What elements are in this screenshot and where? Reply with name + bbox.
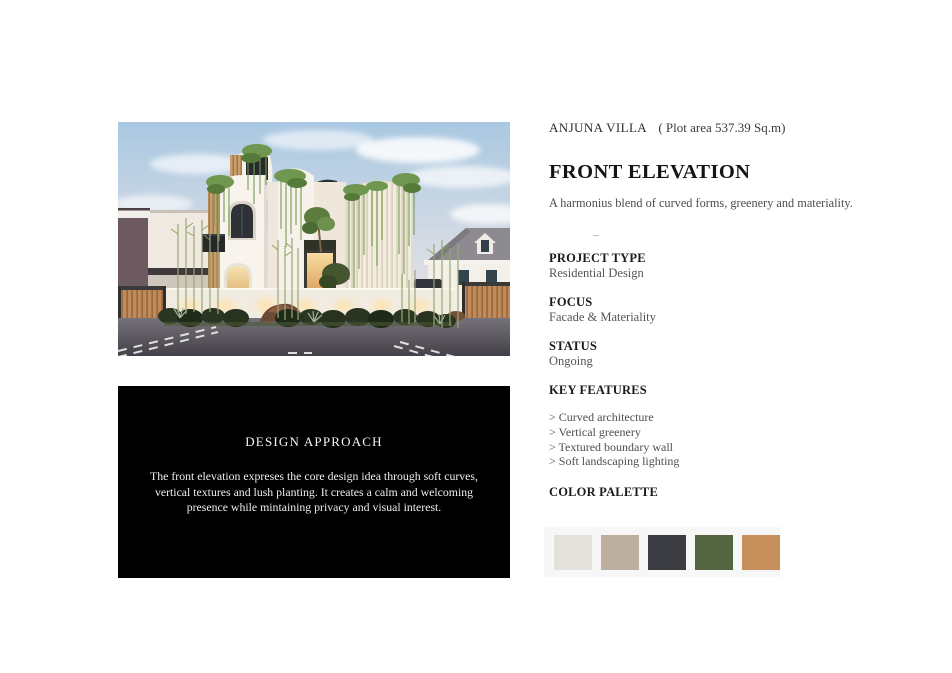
design-approach-body: The front elevation expreses the core de… (118, 469, 510, 516)
detail-label: FOCUS (549, 295, 879, 309)
palette-swatch-charcoal (648, 535, 686, 570)
design-approach-line: The front elevation expreses the core de… (118, 469, 510, 485)
detail-label: PROJECT TYPE (549, 251, 879, 265)
design-approach-line: presence while mintaining privacy and vi… (118, 500, 510, 516)
project-details: PROJECT TYPE Residential Design FOCUS Fa… (549, 251, 879, 369)
detail-status: STATUS Ongoing (549, 339, 879, 369)
key-features-list: > Curved architecture > Vertical greener… (549, 410, 879, 469)
plot-area: ( Plot area 537.39 Sq.m) (658, 120, 785, 135)
villa-render-svg (118, 122, 510, 356)
key-features-label: KEY FEATURES (549, 383, 879, 397)
color-palette-label: COLOR PALETTE (549, 485, 879, 499)
detail-value: Residential Design (549, 266, 879, 281)
page-subtitle: A harmonius blend of curved forms, green… (549, 196, 879, 211)
design-approach-title: DESIGN APPROACH (118, 434, 510, 449)
project-name: ANJUNA VILLA (549, 120, 647, 135)
color-palette-strip (544, 527, 780, 577)
design-approach-line: vertical textures and lush planting. It … (118, 485, 510, 501)
palette-swatch-warm-taupe (601, 535, 639, 570)
detail-project-type: PROJECT TYPE Residential Design (549, 251, 879, 281)
feature-item: > Curved architecture (549, 410, 879, 425)
palette-swatch-off-white (554, 535, 592, 570)
palette-swatch-forest-green (695, 535, 733, 570)
detail-label: STATUS (549, 339, 879, 353)
feature-item: > Vertical greenery (549, 425, 879, 440)
palette-swatch-terracotta (742, 535, 780, 570)
project-header-line: ANJUNA VILLA ( Plot area 537.39 Sq.m) (549, 120, 879, 135)
feature-item: > Textured boundary wall (549, 440, 879, 455)
design-approach-panel: DESIGN APPROACH The front elevation expr… (118, 386, 510, 578)
project-info-column: ANJUNA VILLA ( Plot area 537.39 Sq.m) FR… (549, 120, 879, 499)
detail-focus: FOCUS Facade & Materiality (549, 295, 879, 325)
detail-value: Ongoing (549, 354, 879, 369)
feature-item: > Soft landscaping lighting (549, 454, 879, 469)
villa-render-image (118, 122, 510, 356)
divider-dash: – (593, 229, 879, 239)
detail-value: Facade & Materiality (549, 310, 879, 325)
page-title: FRONT ELEVATION (549, 161, 879, 184)
